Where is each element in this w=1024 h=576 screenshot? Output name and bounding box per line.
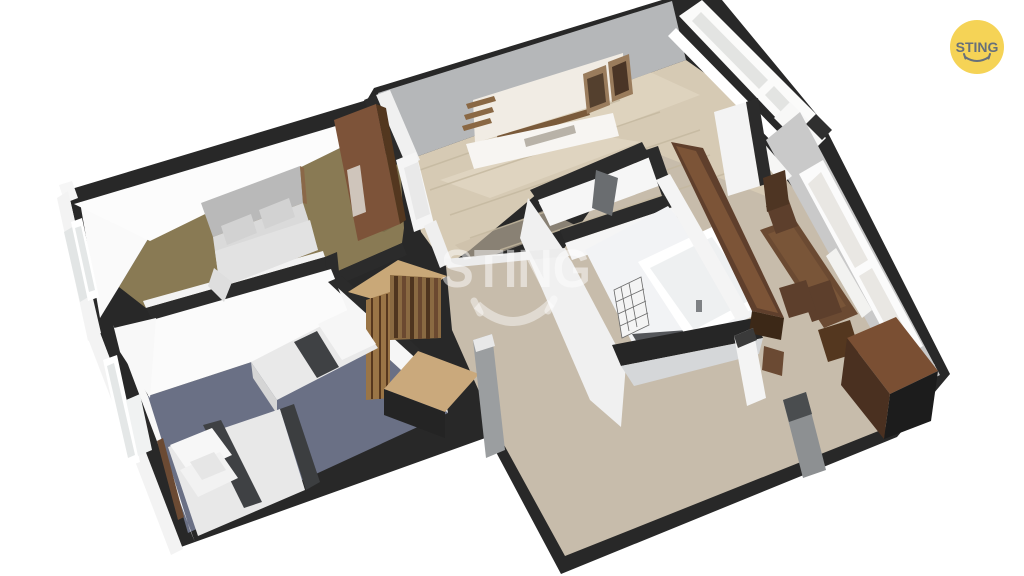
svg-text:STING: STING — [956, 39, 999, 55]
svg-text:STING: STING — [441, 239, 591, 299]
